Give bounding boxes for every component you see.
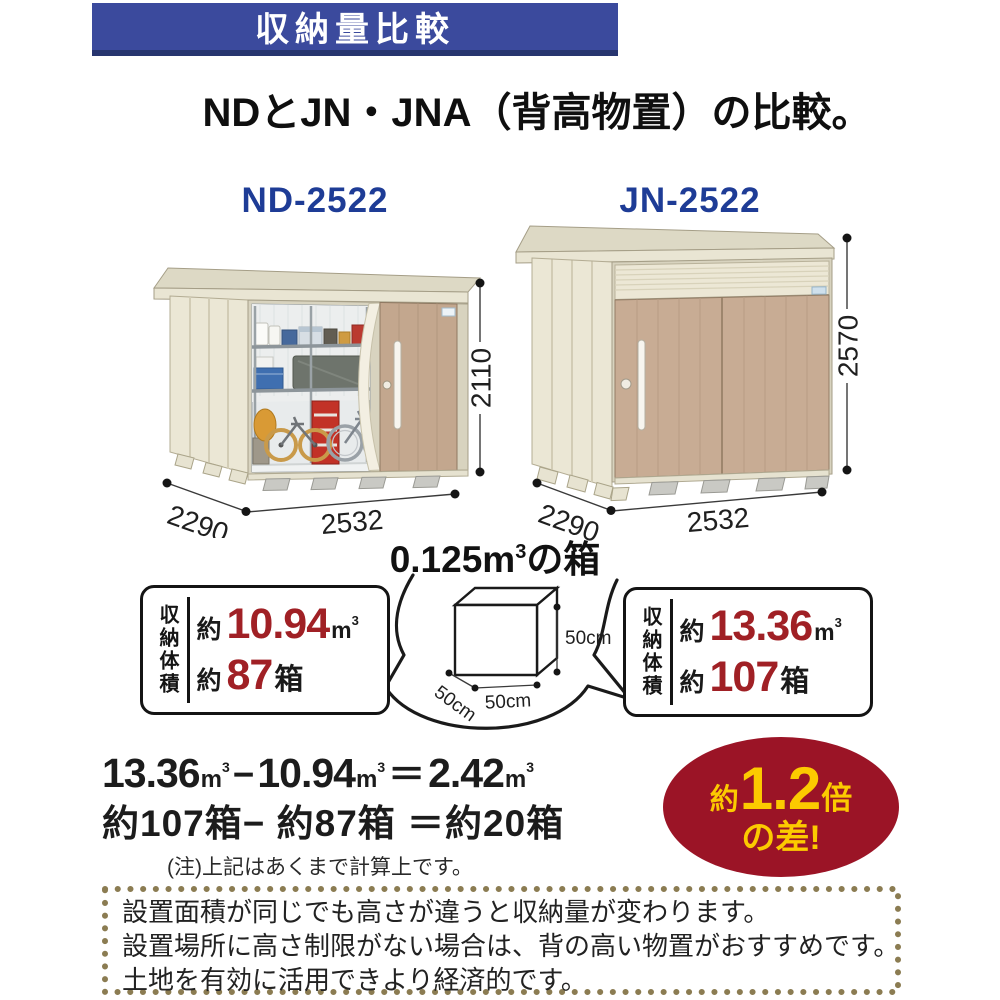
shed-jn-height-label: 2570 [833,315,864,377]
volume-box-jn: 収納体積 約 13.36 m 3 約 107 箱 [623,587,873,717]
difference-badge-line2: の差! [741,821,820,855]
shed-jn-handle [638,340,645,430]
cube-balloon-diagram: 50cm 50cm 50cm [350,540,670,752]
cube-illustration [455,588,557,675]
volume-box-divider [187,597,190,703]
cube-width-label: 50cm [484,690,532,713]
footer-line: 設置面積が同じでも高さが違うと収納量が変わります。 [122,895,899,929]
shed-jn-doors [615,295,829,478]
difference-badge-line1: 約 1.2 倍 [710,759,852,819]
shed-jn-width-label: 2532 [686,502,751,538]
volume-value: 10.94 [227,603,330,646]
model-label-nd: ND-2522 [205,181,425,221]
footer-note-box: 設置面積が同じでも高さが違うと収納量が変わります。 設置場所に高さ制限がない場合… [100,884,903,997]
footer-line: 設置場所に高さ制限がない場合は、背の高い物置がおすすめです。 [122,929,899,963]
calc-note: (注)上記はあくまで計算上です。 [167,851,473,881]
shed-nd-height-label: 2110 [466,348,497,408]
shed-jn-lock [621,379,631,389]
box-count-value: 107 [710,656,779,699]
shed-jn-logo-plate [812,287,826,295]
volume-box-nd-row-count: 約 87 箱 [197,654,382,697]
difference-badge: 約 1.2 倍 の差! [663,737,899,877]
footer-text: 設置面積が同じでも高さが違うと収納量が変わります。 設置場所に高さ制限がない場合… [122,895,899,997]
page: 収納量比較 NDとJN・JNA（背高物置）の比較。 ND-2522 JN-252… [0,0,1000,1000]
volume-box-jn-row-count: 約 107 箱 [680,656,865,699]
shed-jn-shutter-band [615,261,829,300]
shed-nd-logo-plate [442,308,455,316]
shed-nd-lock [383,381,391,389]
shed-jn-roof [516,226,834,263]
equals-sign: ＝ [388,744,425,798]
volume-box-nd-row-volume: 約 10.94 m 3 [197,603,382,646]
box-count-value: 87 [227,654,273,697]
shed-nd-side-wall [170,296,248,474]
cube-height-label: 50cm [565,628,611,649]
volume-box-jn-row-volume: 約 13.36 m 3 [680,605,865,648]
difference-value: 1.2 [740,759,820,819]
volume-box-divider [670,599,673,705]
shed-illustration-jn: 2290 2532 2570 [512,212,884,542]
shed-nd-door [380,303,457,472]
shed-jn-side-wall [532,258,612,488]
volume-box-nd: 収納体積 約 10.94 m 3 約 87 箱 [140,585,390,715]
banner-title: 収納量比較 [255,2,455,51]
shed-nd-handle [394,341,401,429]
volume-box-jn-side-label: 収納体積 [634,596,667,708]
calc-line-boxes: 約107箱− 約87箱 ＝約20箱 [102,793,564,847]
volume-box-nd-side-label: 収納体積 [151,594,184,706]
calc-line-volume: 13.36m3−10.94m3＝2.42m3 [102,744,534,798]
shed-nd-depth-label: 2290 [163,499,232,538]
minus-sign: − [233,754,255,796]
header-banner: 収納量比較 [92,3,618,56]
footer-line: 土地を有効に活用できより経済的です。 [122,963,899,997]
shed-illustration-nd: 2290 2532 2110 [148,238,512,538]
page-subtitle: NDとJN・JNA（背高物置）の比較。 [74,80,1000,138]
volume-value: 13.36 [710,605,813,648]
